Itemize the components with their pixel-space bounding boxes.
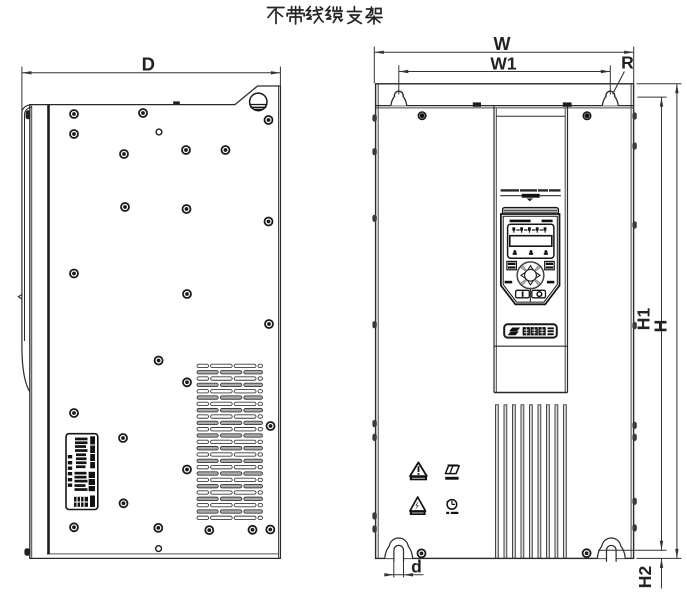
svg-text:H: H bbox=[650, 320, 670, 333]
svg-text:W1: W1 bbox=[490, 53, 517, 73]
svg-text:H2: H2 bbox=[635, 566, 655, 589]
svg-text:W: W bbox=[494, 34, 511, 54]
svg-text:D: D bbox=[142, 54, 155, 75]
svg-text:d: d bbox=[411, 557, 422, 577]
svg-text:R: R bbox=[621, 53, 634, 73]
